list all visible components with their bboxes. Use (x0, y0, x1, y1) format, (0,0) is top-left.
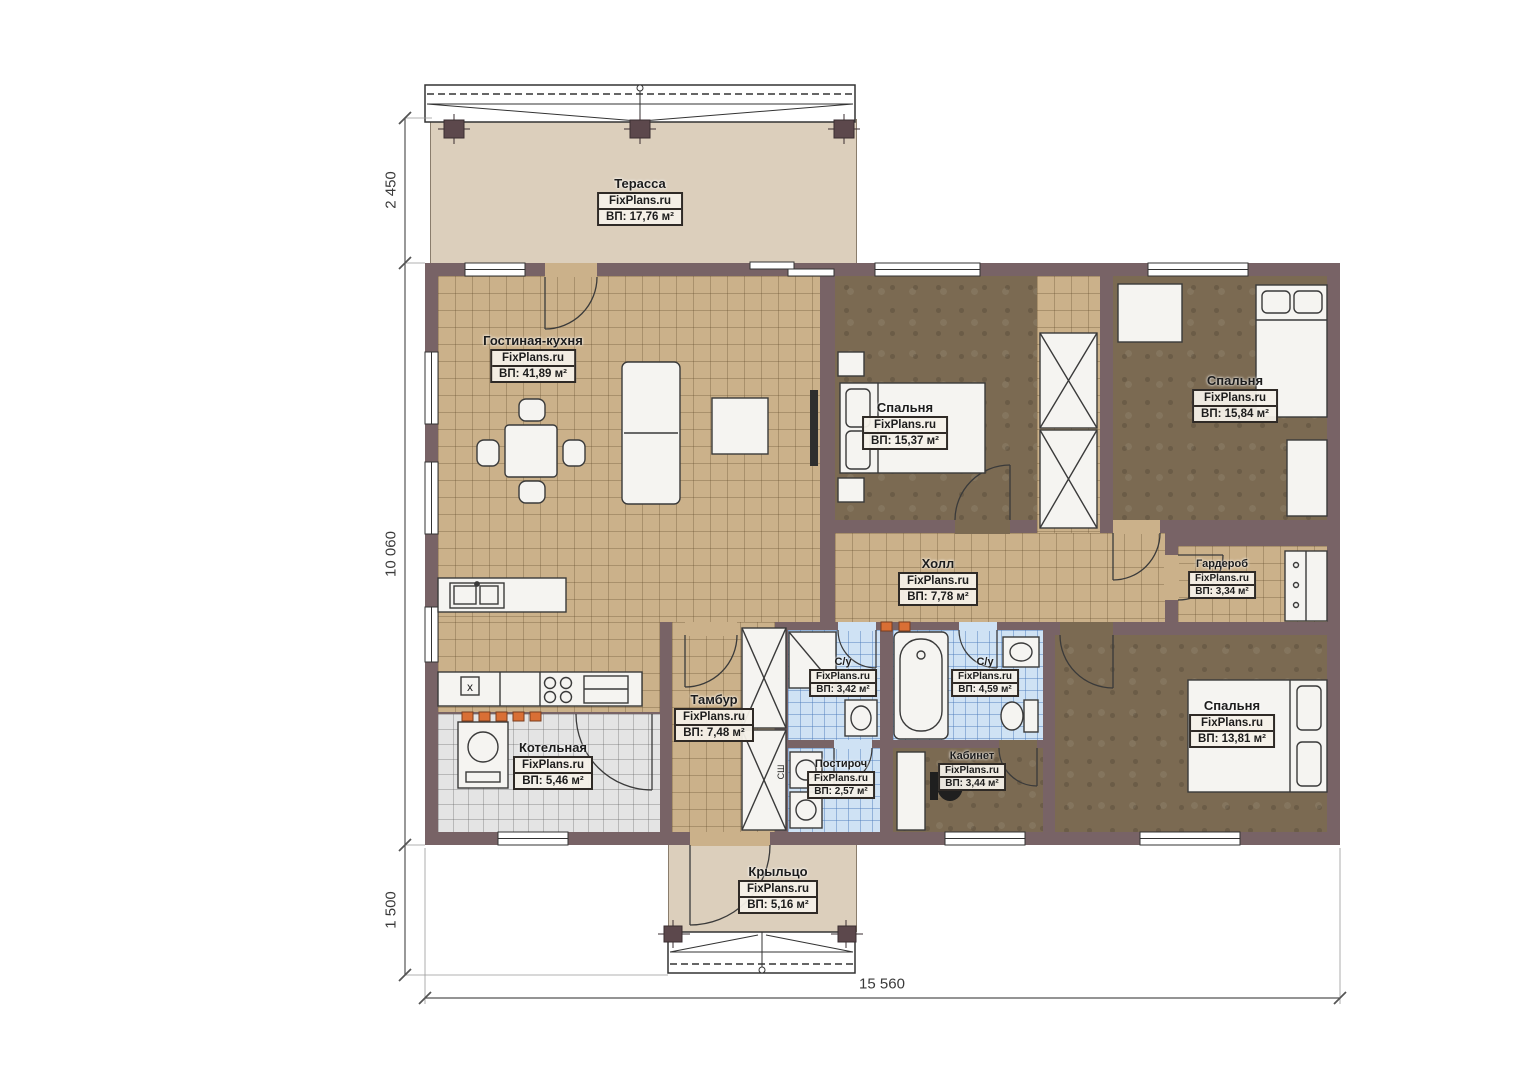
door-opening (545, 263, 597, 277)
room-name: Постироч (807, 758, 875, 770)
room-area: ВП: 41,89 м² (492, 365, 574, 381)
brand-watermark: FixPlans.ru (864, 418, 946, 432)
brand-watermark: FixPlans.ru (940, 765, 1004, 776)
room-label-boiler: Котельная FixPlans.ru ВП: 5,46 м² (513, 740, 593, 790)
room-label-laundry: Постироч FixPlans.ru ВП: 2,57 м² (807, 758, 875, 799)
room-area: ВП: 17,76 м² (599, 208, 681, 224)
dimension-house-width: 15 560 (859, 976, 905, 993)
room-label-terrace: Терасса FixPlans.ru ВП: 17,76 м² (597, 176, 683, 226)
door-opening (1113, 520, 1160, 534)
room-area: ВП: 7,48 м² (676, 724, 752, 740)
room-label-wardrobe: Гардероб FixPlans.ru ВП: 3,34 м² (1188, 558, 1256, 599)
room-name: Крыльцо (738, 864, 818, 879)
door-opening (690, 832, 770, 846)
room-name: С/у (951, 656, 1019, 668)
room-name: Гостиная-кухня (483, 333, 583, 348)
brand-watermark: FixPlans.ru (811, 671, 875, 682)
room-name: Котельная (513, 740, 593, 755)
room-name: Холл (898, 556, 978, 571)
door-opening (685, 622, 737, 636)
room-name: Спальня (1192, 373, 1278, 388)
brand-watermark: FixPlans.ru (953, 671, 1017, 682)
door-opening (834, 740, 872, 749)
door-opening (1060, 622, 1113, 636)
room-area: ВП: 3,34 м² (1190, 584, 1254, 597)
floor-plan: x (0, 0, 1528, 1080)
room-area: ВП: 4,59 м² (953, 682, 1017, 695)
room-area: ВП: 2,57 м² (809, 784, 873, 797)
brand-watermark: FixPlans.ru (1194, 391, 1276, 405)
brand-watermark: FixPlans.ru (676, 710, 752, 724)
brand-watermark: FixPlans.ru (900, 574, 976, 588)
room-area: ВП: 3,44 м² (940, 776, 1004, 789)
room-label-bedroom-3: Спальня FixPlans.ru ВП: 13,81 м² (1189, 698, 1275, 748)
room-label-bathroom-2: С/у FixPlans.ru ВП: 4,59 м² (951, 656, 1019, 697)
room-name: Спальня (862, 400, 948, 415)
door-opening (999, 740, 1037, 749)
door-opening (955, 520, 1010, 534)
room-kitchen-strip (438, 622, 660, 712)
room-area: ВП: 5,16 м² (740, 896, 816, 912)
door-opening (838, 622, 876, 631)
room-area: ВП: 3,42 м² (811, 682, 875, 695)
door-opening (959, 622, 997, 631)
room-area: ВП: 5,46 м² (515, 772, 591, 788)
room-area: ВП: 13,81 м² (1191, 730, 1273, 746)
room-area: ВП: 15,37 м² (864, 432, 946, 448)
brand-watermark: FixPlans.ru (515, 758, 591, 772)
room-label-bedroom-1: Спальня FixPlans.ru ВП: 15,37 м² (862, 400, 948, 450)
door-opening (1164, 555, 1179, 600)
dimension-porch-depth: 1 500 (383, 891, 400, 929)
porch-roof-outline (668, 932, 855, 973)
room-name: Гардероб (1188, 558, 1256, 570)
brand-watermark: FixPlans.ru (809, 773, 873, 784)
room-label-hall: Холл FixPlans.ru ВП: 7,78 м² (898, 556, 978, 606)
dimension-terrace-depth: 2 450 (383, 171, 400, 209)
brand-watermark: FixPlans.ru (740, 882, 816, 896)
room-name: С/у (809, 656, 877, 668)
room-living-kitchen (438, 276, 820, 622)
room-name: Терасса (597, 176, 683, 191)
room-label-living-kitchen: Гостиная-кухня FixPlans.ru ВП: 41,89 м² (483, 333, 583, 383)
brand-watermark: FixPlans.ru (1191, 716, 1273, 730)
brand-watermark: FixPlans.ru (1190, 573, 1254, 584)
dimension-house-depth: 10 060 (383, 531, 400, 577)
room-bedroom-1 (835, 276, 1037, 520)
room-label-bedroom-2: Спальня FixPlans.ru ВП: 15,84 м² (1192, 373, 1278, 423)
room-label-porch: Крыльцо FixPlans.ru ВП: 5,16 м² (738, 864, 818, 914)
room-hall (835, 533, 1165, 622)
room-label-vestibule: Тамбур FixPlans.ru ВП: 7,48 м² (674, 692, 754, 742)
room-name: Кабинет (938, 750, 1006, 762)
room-name: Спальня (1189, 698, 1275, 713)
terrace-roof-outline (425, 85, 855, 122)
room-area: ВП: 15,84 м² (1194, 405, 1276, 421)
room-label-bathroom-1: С/у FixPlans.ru ВП: 3,42 м² (809, 656, 877, 697)
brand-watermark: FixPlans.ru (492, 351, 574, 365)
room-area: ВП: 7,78 м² (900, 588, 976, 604)
brand-watermark: FixPlans.ru (599, 194, 681, 208)
hall-corridor-vertical (1037, 276, 1100, 533)
room-name: Тамбур (674, 692, 754, 707)
room-label-office: Кабинет FixPlans.ru ВП: 3,44 м² (938, 750, 1006, 791)
